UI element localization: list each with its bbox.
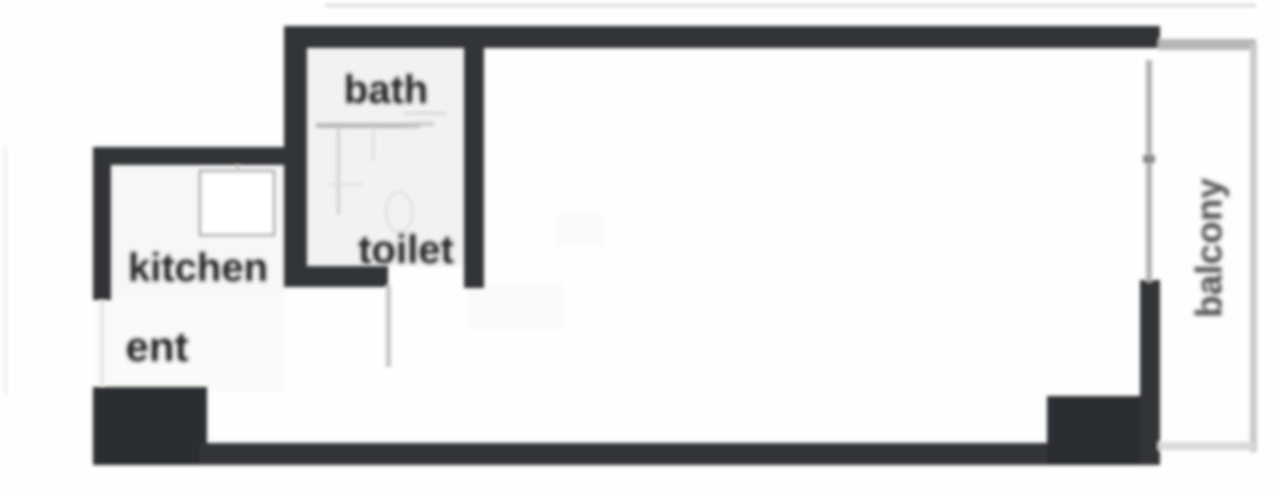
svg-text:ent: ent [126,323,189,370]
svg-text:balcony: balcony [1189,178,1230,318]
svg-text:toilet: toilet [358,228,454,272]
svg-text:kitchen: kitchen [128,246,268,290]
svg-text:bath: bath [344,68,428,112]
